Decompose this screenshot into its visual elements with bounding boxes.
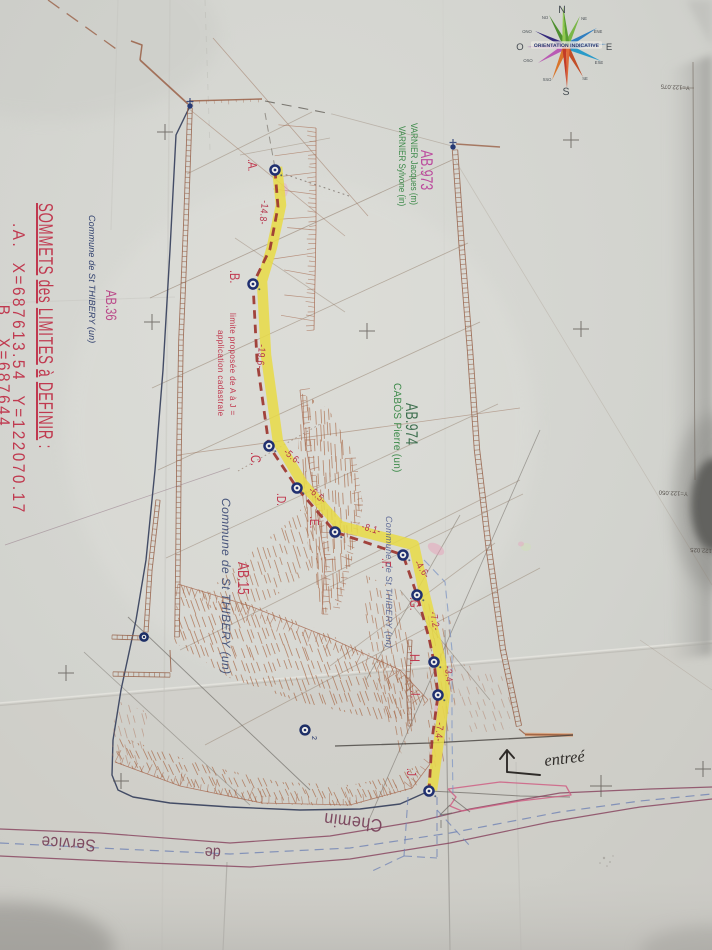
svg-text:122.025: 122.025 bbox=[689, 546, 712, 554]
svg-text:ENE: ENE bbox=[594, 29, 603, 34]
svg-text:O: O bbox=[516, 42, 523, 53]
svg-text:application cadastrale: application cadastrale bbox=[216, 330, 226, 416]
svg-text:AB.36: AB.36 bbox=[102, 290, 119, 321]
svg-text:N: N bbox=[558, 4, 566, 16]
svg-text:limite proposée de A à J =: limite proposée de A à J = bbox=[228, 313, 238, 416]
svg-text:.H.: .H. bbox=[407, 651, 423, 665]
svg-text:S: S bbox=[562, 86, 569, 98]
svg-text:-3.4-: -3.4- bbox=[442, 665, 454, 685]
svg-text:.F.: .F. bbox=[379, 558, 394, 569]
svg-text:.G.: .G. bbox=[407, 597, 422, 611]
svg-text:Commune de St THIBERY (un): Commune de St THIBERY (un) bbox=[219, 498, 233, 674]
svg-text:de: de bbox=[204, 843, 221, 861]
svg-text:NO: NO bbox=[542, 15, 549, 20]
svg-text:NE: NE bbox=[581, 16, 587, 21]
svg-text:ONO: ONO bbox=[522, 29, 532, 34]
svg-text:VARNIER Jacques (m): VARNIER Jacques (m) bbox=[408, 123, 419, 205]
svg-text:Commune de St THIBERY (un): Commune de St THIBERY (un) bbox=[384, 516, 394, 648]
svg-text:.J.: .J. bbox=[404, 768, 419, 779]
svg-text:SSO: SSO bbox=[543, 77, 553, 82]
svg-text:.E.: .E. bbox=[307, 516, 322, 528]
svg-text:.B.: .B. bbox=[227, 270, 243, 283]
svg-text:ESE: ESE bbox=[595, 60, 604, 65]
svg-text:E: E bbox=[606, 42, 612, 53]
svg-text:Service: Service bbox=[40, 832, 96, 855]
svg-text:SOMMETS des LIMITES à DEFINIR: SOMMETS des LIMITES à DEFINIR : bbox=[34, 203, 56, 449]
svg-text:.C.: .C. bbox=[248, 452, 264, 466]
svg-text:ORIENTATION INDICATIVE: ORIENTATION INDICATIVE bbox=[534, 43, 600, 49]
svg-text:.B. X=687644: .B. X=687644 bbox=[0, 298, 13, 428]
svg-text:.D.: .D. bbox=[274, 493, 289, 506]
svg-text:2: 2 bbox=[310, 736, 317, 740]
svg-text:Commune de St THIBERY (un): Commune de St THIBERY (un) bbox=[87, 215, 97, 343]
svg-text:SE: SE bbox=[582, 76, 588, 81]
svg-text:-7.4-: -7.4- bbox=[432, 722, 445, 742]
svg-text:CABÒS Pierre (un): CABÒS Pierre (un) bbox=[391, 383, 404, 473]
svg-text:AB.974: AB.974 bbox=[402, 403, 421, 445]
svg-text:VARNIER Sylvone (in): VARNIER Sylvone (in) bbox=[396, 126, 407, 206]
svg-text:AB.15: AB.15 bbox=[234, 562, 251, 595]
svg-text:.I.: .I. bbox=[408, 690, 423, 698]
svg-text:.A.: .A. bbox=[245, 159, 260, 171]
svg-text:-19.6-: -19.6- bbox=[254, 344, 267, 370]
svg-text:OSO: OSO bbox=[523, 58, 533, 63]
